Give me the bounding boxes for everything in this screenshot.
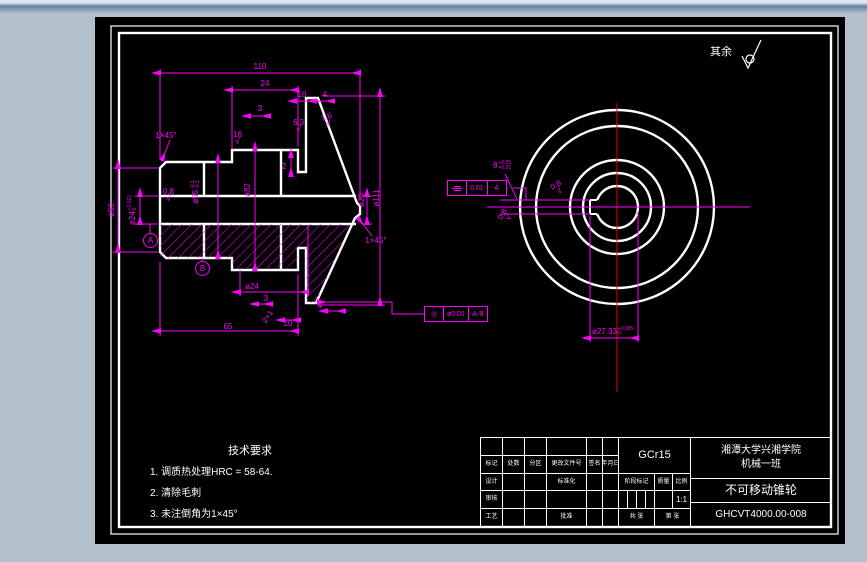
- tb-cell: [524, 473, 547, 491]
- dim-65: 65: [224, 323, 233, 331]
- fcf2-datum-ref: A: [487, 181, 506, 195]
- tb-sheets-total: 共 张: [618, 508, 655, 527]
- dim-dia-55-tol: ø55-0.1-0.3: [191, 180, 201, 203]
- dim-dia-20: ø20: [358, 193, 366, 207]
- tb-cell: [502, 508, 525, 527]
- tb-school-line1: 湘潭大学兴湘学院: [721, 444, 801, 458]
- dim-keyway-depth: ø27.33+0.0650: [592, 327, 633, 337]
- tb-zone: 分区: [524, 455, 547, 474]
- dim-length-3: 3: [258, 105, 262, 113]
- tb-drawing-number: GHCVT4000.00-008: [690, 502, 832, 527]
- tb-cell: [586, 490, 603, 509]
- tech-req-line-2: 2. 清除毛刺: [150, 483, 350, 504]
- tb-cell: [602, 490, 619, 509]
- roughness-6-3: 6.3√: [293, 119, 304, 133]
- tb-part-name: 不可移动锥轮: [690, 478, 832, 503]
- tb-mark: 标记: [480, 455, 503, 474]
- tb-cell: [586, 473, 603, 491]
- dim-3-bottom: 3: [264, 295, 268, 303]
- tb-stage-mark: 阶段标记: [618, 473, 655, 491]
- dim-length-24: 24: [261, 80, 270, 88]
- tb-cell: [546, 437, 587, 456]
- tb-cell: [546, 490, 587, 509]
- tb-change-doc: 更改文件号: [546, 455, 587, 474]
- dim-length-4: 4: [323, 91, 327, 99]
- tb-cell: [524, 490, 547, 509]
- rest-surfaces-note: 其余: [710, 48, 732, 56]
- fcf-symmetry: 0.01 A: [447, 180, 507, 196]
- roughness-0-8-bore: 0.8√: [163, 188, 174, 202]
- dim-dia-24-bottom: ø24: [245, 283, 259, 291]
- fcf1-datum-ref: A-B: [468, 307, 487, 321]
- tb-check: 审核: [480, 490, 503, 509]
- tb-date: 年月日: [602, 455, 619, 474]
- technical-requirements: 技术要求 1. 调质热处理HRC = 58-64. 2. 清除毛刺 3. 未注倒…: [150, 441, 350, 525]
- tb-approve: 批准: [546, 508, 587, 527]
- tb-cell: [602, 437, 619, 456]
- concentricity-icon: ◎: [425, 307, 443, 321]
- tb-cell: [524, 437, 547, 456]
- tb-design: 设计: [480, 473, 503, 491]
- roughness-16: 16√: [233, 131, 242, 145]
- dim-length-2: 2: [282, 163, 286, 171]
- dim-keyway-width: 8+0.05+0.01: [493, 161, 511, 171]
- tb-sheet-number: 第 张: [654, 508, 691, 527]
- tech-req-title: 技术要求: [150, 441, 350, 462]
- fcf1-tolerance: ø0.01: [443, 307, 468, 321]
- fcf-concentricity: ◎ ø0.01 A-B: [424, 306, 488, 322]
- chamfer-note-left: 1×45°: [155, 132, 176, 140]
- tb-school-line2: 机械一班: [741, 458, 781, 472]
- tech-req-line-1: 1. 调质热处理HRC = 58-64.: [150, 462, 350, 483]
- tb-material: GCr15: [618, 437, 691, 474]
- symmetry-icon: [448, 181, 466, 195]
- dim-length-10: 10: [298, 91, 307, 99]
- cad-drawing-window: 110 24 10 4 3 2 1×45° 1×45° 16√ 6.3√ 1.6…: [0, 0, 867, 562]
- dim-dia-24-tol: ø24+0.0210: [128, 195, 138, 225]
- tb-cell: [502, 437, 525, 456]
- section-view-outline: [160, 98, 360, 303]
- fcf2-tolerance: 0.01: [466, 181, 487, 195]
- tb-cell: [502, 490, 525, 509]
- tb-school: 湘潭大学兴湘学院 机械一班: [690, 437, 832, 479]
- datum-b: B: [195, 261, 210, 276]
- tb-cell: [586, 508, 603, 527]
- tb-sign: 签名: [586, 455, 603, 474]
- surface-finish-rest-icon: [742, 40, 761, 68]
- tb-scale-value: 1:1: [672, 490, 691, 509]
- tb-craft: 工艺: [480, 508, 503, 527]
- dim-10-bottom: 10: [284, 320, 293, 328]
- tech-req-line-3: 3. 未注倒角为1×45°: [150, 504, 350, 525]
- dim-length-110: 110: [254, 63, 267, 71]
- dim-4-bottom: 4: [318, 302, 322, 310]
- tb-cell: [524, 508, 547, 527]
- tb-cell: [480, 437, 503, 456]
- dim-dia-50: ø50: [108, 203, 116, 217]
- chamfer-note-right: 1×45°: [365, 237, 386, 245]
- tb-cell: [602, 508, 619, 527]
- tb-cell: [502, 473, 525, 491]
- tb-standardize: 标准化: [546, 473, 587, 491]
- datum-a: A: [143, 233, 158, 248]
- tb-scale: 比例: [672, 473, 691, 491]
- tb-cell: [602, 473, 619, 491]
- tb-count: 处数: [502, 455, 525, 474]
- dim-dia-111: ø111: [373, 189, 381, 206]
- dim-dia-82: ø82: [244, 183, 252, 197]
- tb-weight: 质量: [654, 473, 673, 491]
- tb-cell: [586, 437, 603, 456]
- tb-cell: [654, 490, 673, 509]
